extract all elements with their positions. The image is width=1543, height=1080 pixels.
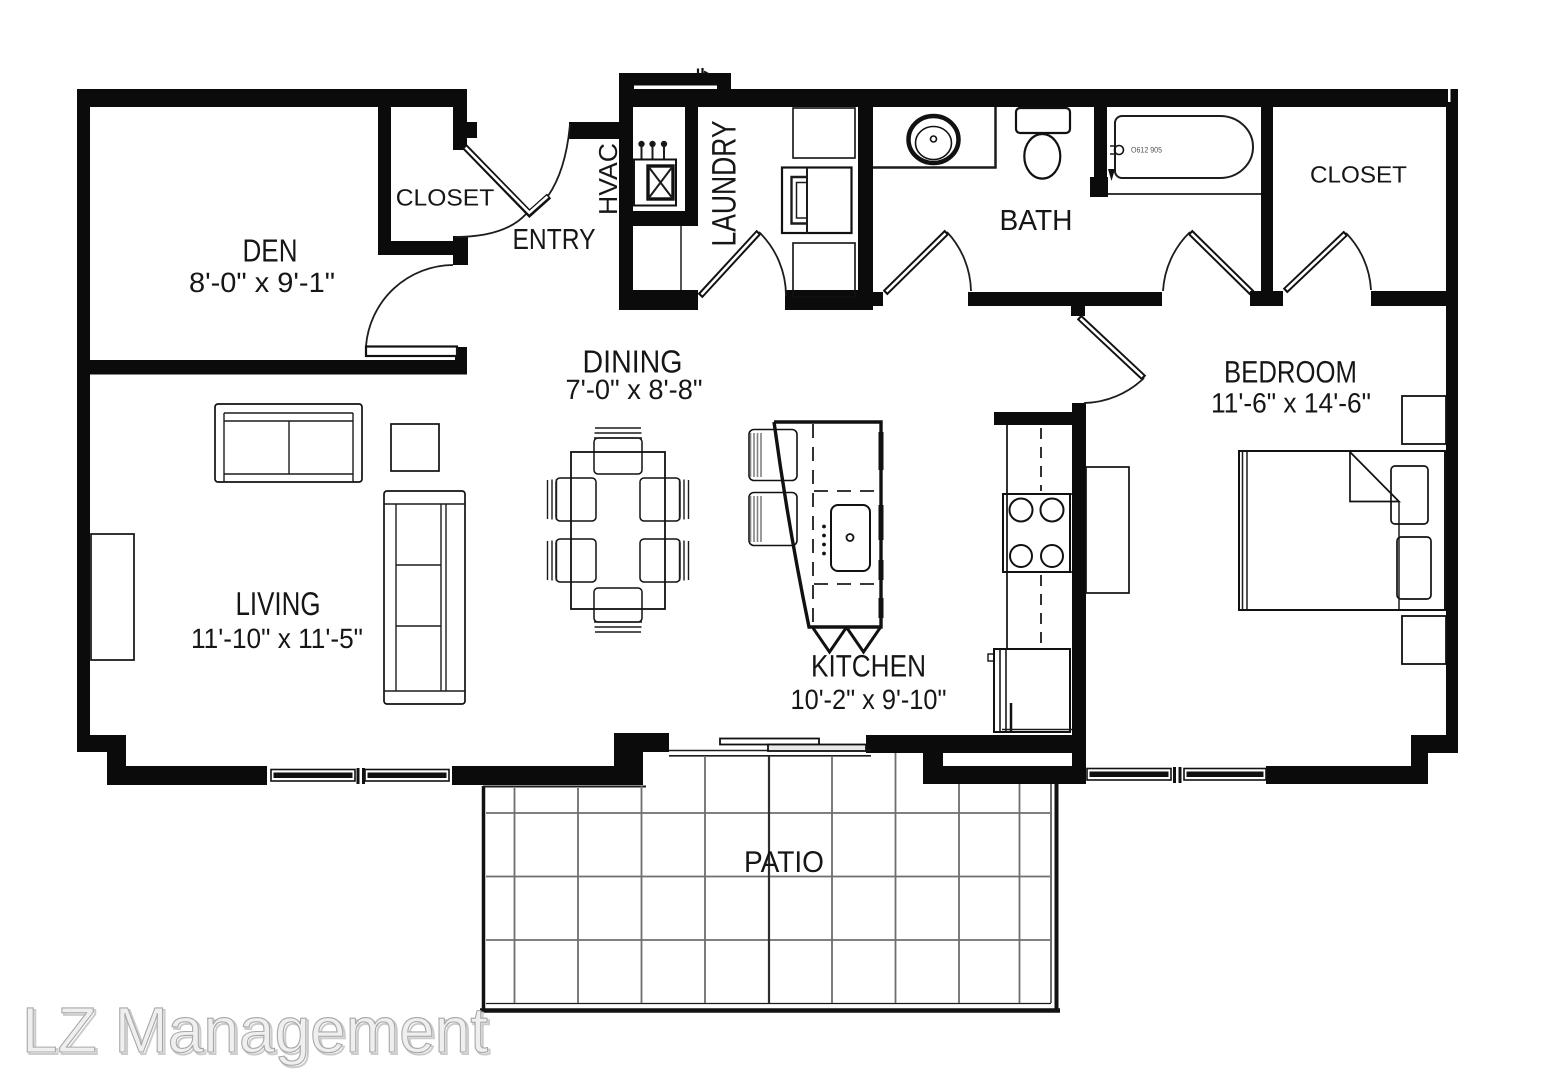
svg-text:LIVING: LIVING — [236, 585, 321, 622]
svg-text:8'-0" x 9'-1": 8'-0" x 9'-1" — [189, 267, 335, 298]
svg-text:HVAC: HVAC — [593, 143, 623, 215]
svg-text:BATH: BATH — [1000, 205, 1073, 237]
svg-text:LZ Management: LZ Management — [22, 994, 488, 1066]
svg-text:7'-0" x 8'-8": 7'-0" x 8'-8" — [566, 374, 703, 405]
svg-text:PATIO: PATIO — [744, 846, 824, 879]
svg-text:BEDROOM: BEDROOM — [1224, 355, 1357, 390]
svg-text:O612 905: O612 905 — [1131, 146, 1162, 155]
svg-text:LAUNDRY: LAUNDRY — [706, 121, 744, 247]
svg-text:DEN: DEN — [243, 233, 298, 269]
svg-text:KITCHEN: KITCHEN — [811, 649, 926, 684]
svg-text:CLOSET: CLOSET — [1310, 162, 1407, 188]
svg-text:ENTRY: ENTRY — [513, 224, 596, 256]
svg-text:10'-2" x 9'-10": 10'-2" x 9'-10" — [791, 684, 947, 715]
svg-text:11'-6" x 14'-6": 11'-6" x 14'-6" — [1211, 388, 1371, 419]
svg-text:CLOSET: CLOSET — [396, 185, 495, 211]
svg-text:11'-10" x 11'-5": 11'-10" x 11'-5" — [191, 623, 363, 654]
